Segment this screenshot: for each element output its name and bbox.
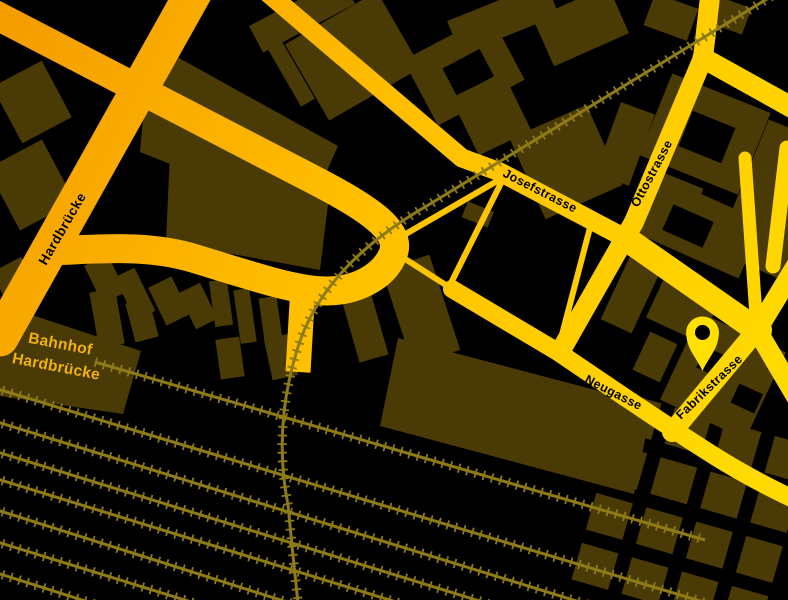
map-canvas[interactable]: Hardbrücke Josefstrasse Ottostrasse Neug… (0, 0, 788, 600)
road-stub (298, 286, 303, 372)
road-junction-circle (742, 315, 772, 345)
